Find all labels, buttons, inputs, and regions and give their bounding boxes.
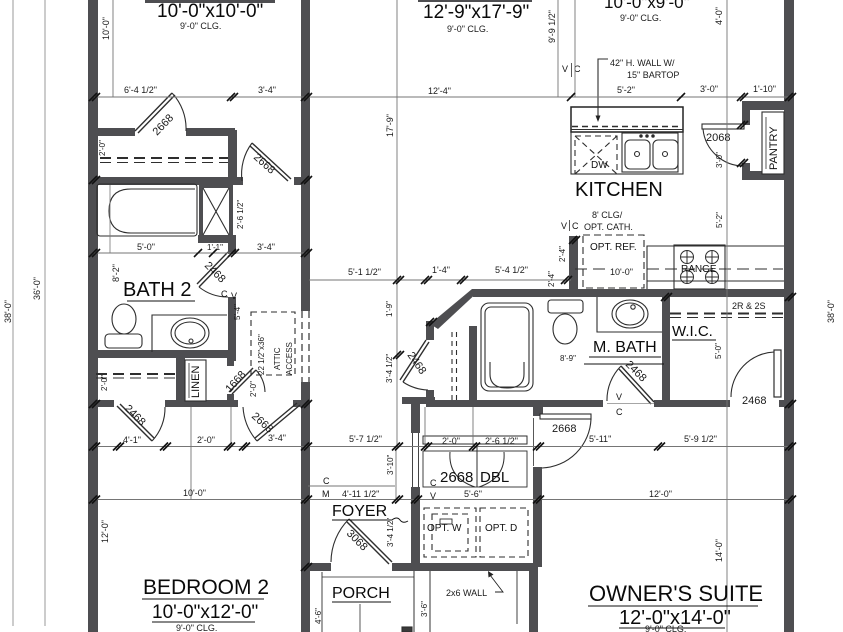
svg-text:5'-9 1/2": 5'-9 1/2" xyxy=(684,434,717,444)
svg-text:12'-0": 12'-0" xyxy=(100,520,110,543)
svg-text:PANTRY: PANTRY xyxy=(768,126,780,170)
svg-text:9'-0" CLG.: 9'-0" CLG. xyxy=(620,13,661,23)
svg-text:3'-0": 3'-0" xyxy=(700,84,718,94)
svg-text:10'-0": 10'-0" xyxy=(610,267,633,277)
svg-text:5'-2": 5'-2" xyxy=(617,85,635,95)
svg-text:5'-0": 5'-0" xyxy=(137,242,155,252)
svg-text:2668: 2668 xyxy=(440,469,473,486)
svg-text:C: C xyxy=(323,476,330,486)
svg-text:10'-0": 10'-0" xyxy=(101,17,111,40)
svg-text:2'-0": 2'-0" xyxy=(98,140,107,156)
svg-text:4'-11 1/2": 4'-11 1/2" xyxy=(342,489,379,499)
svg-text:2'-4": 2'-4" xyxy=(547,271,556,287)
svg-text:OPT. CATH.: OPT. CATH. xyxy=(584,222,633,232)
svg-text:C: C xyxy=(221,289,228,299)
svg-text:3'-4": 3'-4" xyxy=(268,433,286,443)
svg-text:C: C xyxy=(430,478,437,488)
svg-text:8'-9": 8'-9" xyxy=(560,354,576,363)
svg-text:2R & 2S: 2R & 2S xyxy=(732,301,766,311)
svg-text:15" BARTOP: 15" BARTOP xyxy=(627,70,679,80)
svg-text:M: M xyxy=(322,489,330,499)
svg-text:4'-0": 4'-0" xyxy=(714,7,724,25)
svg-text:OPT. REF.: OPT. REF. xyxy=(590,242,637,253)
svg-text:10'-0"x10'-0": 10'-0"x10'-0" xyxy=(157,1,263,22)
svg-text:4'-1": 4'-1" xyxy=(123,435,141,445)
svg-text:10'-0"x12'-0": 10'-0"x12'-0" xyxy=(152,602,258,623)
svg-text:3'-4": 3'-4" xyxy=(258,85,276,95)
svg-text:5'-7 1/2": 5'-7 1/2" xyxy=(349,434,382,444)
svg-text:C: C xyxy=(572,221,579,231)
svg-text:5'-6": 5'-6" xyxy=(464,489,482,499)
svg-text:PORCH: PORCH xyxy=(332,585,390,602)
svg-text:DBL: DBL xyxy=(480,469,509,486)
svg-text:BATH 2: BATH 2 xyxy=(123,279,192,301)
svg-text:2'-0": 2'-0" xyxy=(249,381,258,397)
svg-text:12'-4": 12'-4" xyxy=(428,86,451,96)
svg-text:V: V xyxy=(562,64,568,74)
svg-text:5'-0": 5'-0" xyxy=(714,343,723,359)
svg-text:9'-0" CLG.: 9'-0" CLG. xyxy=(176,623,217,632)
svg-text:C: C xyxy=(616,407,623,417)
svg-text:36'-0": 36'-0" xyxy=(32,277,42,300)
svg-text:12'-0": 12'-0" xyxy=(649,489,672,499)
svg-text:3'-6": 3'-6" xyxy=(420,601,429,617)
svg-text:2'-0": 2'-0" xyxy=(197,435,215,445)
svg-text:2x6 WALL: 2x6 WALL xyxy=(446,588,487,598)
svg-text:W.I.C.: W.I.C. xyxy=(672,323,713,340)
svg-text:LINEN: LINEN xyxy=(190,366,202,398)
svg-text:OWNER'S SUITE: OWNER'S SUITE xyxy=(589,581,763,606)
svg-text:38'-0": 38'-0" xyxy=(826,300,836,323)
svg-text:BEDROOM 2: BEDROOM 2 xyxy=(143,576,269,599)
svg-text:6'-4 1/2": 6'-4 1/2" xyxy=(124,85,157,95)
svg-text:2'-0": 2'-0" xyxy=(100,375,109,391)
svg-text:3'-10": 3'-10" xyxy=(386,454,395,475)
svg-text:8'-2": 8'-2" xyxy=(111,264,121,282)
svg-text:M. BATH: M. BATH xyxy=(593,339,657,356)
svg-text:2668: 2668 xyxy=(552,423,576,435)
svg-text:FOYER: FOYER xyxy=(332,503,387,520)
svg-text:4'-6": 4'-6" xyxy=(314,608,323,624)
svg-text:10'-0": 10'-0" xyxy=(183,488,206,498)
svg-text:DW: DW xyxy=(591,160,608,171)
svg-text:5'-2": 5'-2" xyxy=(715,212,724,228)
svg-text:38'-0": 38'-0" xyxy=(3,300,13,323)
svg-text:14'-0": 14'-0" xyxy=(714,539,724,562)
svg-text:2468: 2468 xyxy=(742,395,766,407)
svg-text:2'-6 1/2": 2'-6 1/2" xyxy=(485,436,518,446)
svg-text:5'-4": 5'-4" xyxy=(233,304,242,320)
svg-text:2'-0": 2'-0" xyxy=(442,436,460,446)
svg-text:1'-4": 1'-4" xyxy=(432,265,450,275)
svg-text:10'-0"x9'-0": 10'-0"x9'-0" xyxy=(604,0,690,12)
svg-text:V: V xyxy=(561,221,567,231)
svg-text:V: V xyxy=(231,291,237,301)
svg-text:12'-9"x17'-9": 12'-9"x17'-9" xyxy=(423,2,529,23)
svg-text:5'-11": 5'-11" xyxy=(589,434,611,444)
svg-text:3'-4": 3'-4" xyxy=(257,242,275,252)
svg-text:5'-1 1/2": 5'-1 1/2" xyxy=(348,267,381,277)
svg-text:1'-1": 1'-1" xyxy=(207,243,223,252)
svg-text:3'-0": 3'-0" xyxy=(715,152,724,168)
svg-text:3'-4 1/2": 3'-4 1/2" xyxy=(385,354,394,383)
svg-text:OPT. W: OPT. W xyxy=(427,523,462,534)
svg-text:1'-10": 1'-10" xyxy=(753,84,776,94)
svg-text:9'-0" CLG.: 9'-0" CLG. xyxy=(447,24,488,34)
svg-text:OPT. D: OPT. D xyxy=(485,523,517,534)
svg-text:ACCESS: ACCESS xyxy=(285,342,294,375)
svg-text:2'-4": 2'-4" xyxy=(558,246,567,262)
svg-text:9'-0" CLG.: 9'-0" CLG. xyxy=(645,624,686,632)
svg-text:9'-0" CLG.: 9'-0" CLG. xyxy=(180,21,221,31)
svg-text:3'-4 1/2": 3'-4 1/2" xyxy=(386,518,395,547)
svg-text:42" H. WALL W/: 42" H. WALL W/ xyxy=(610,58,675,68)
svg-text:22 1/2"x36": 22 1/2"x36" xyxy=(257,334,266,375)
svg-text:17'-9": 17'-9" xyxy=(385,114,395,137)
svg-text:1'-9": 1'-9" xyxy=(385,301,394,317)
svg-text:KITCHEN: KITCHEN xyxy=(575,179,663,201)
svg-text:2'-6 1/2": 2'-6 1/2" xyxy=(236,200,245,229)
svg-text:8' CLG/: 8' CLG/ xyxy=(592,210,623,220)
svg-text:V: V xyxy=(616,392,622,402)
svg-text:5'-4 1/2": 5'-4 1/2" xyxy=(495,265,528,275)
svg-text:ATTIC: ATTIC xyxy=(273,347,282,370)
svg-text:9'-9 1/2": 9'-9 1/2" xyxy=(547,10,557,43)
